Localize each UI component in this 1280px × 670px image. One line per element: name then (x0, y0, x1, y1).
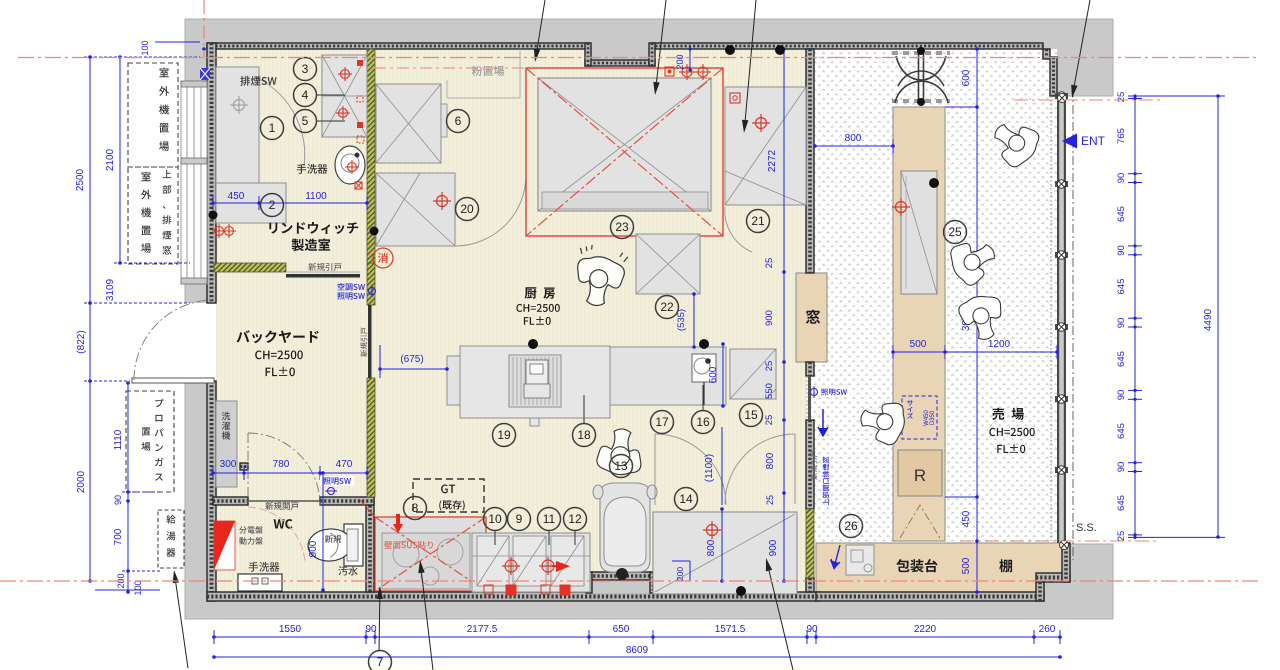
svg-text:2100: 2100 (105, 148, 116, 171)
svg-text:25: 25 (764, 258, 775, 269)
svg-text:14: 14 (679, 492, 693, 506)
svg-text:25: 25 (948, 225, 962, 239)
svg-text:12: 12 (568, 512, 582, 526)
svg-text:20: 20 (460, 202, 474, 216)
svg-text:900: 900 (308, 540, 319, 557)
svg-text:2177.5: 2177.5 (467, 624, 498, 635)
svg-text:765: 765 (1116, 128, 1127, 144)
svg-text:450: 450 (228, 191, 245, 202)
svg-text:1200: 1200 (988, 339, 1011, 350)
svg-text:645: 645 (1116, 423, 1127, 439)
svg-text:1100: 1100 (305, 191, 327, 202)
svg-text:26: 26 (844, 519, 858, 533)
svg-text:8609: 8609 (626, 645, 649, 656)
svg-text:2500: 2500 (75, 168, 86, 191)
svg-text:S.S.: S.S. (1076, 522, 1097, 534)
svg-text:5: 5 (302, 114, 309, 128)
svg-text:90: 90 (806, 624, 818, 635)
svg-text:90: 90 (1116, 318, 1127, 329)
svg-text:450: 450 (961, 510, 972, 527)
svg-text:9: 9 (516, 512, 523, 526)
svg-text:25: 25 (1116, 92, 1127, 103)
svg-text:25: 25 (764, 361, 775, 372)
svg-text:ENT: ENT (1081, 134, 1106, 148)
svg-text:23: 23 (615, 220, 629, 234)
svg-text:(822): (822) (76, 330, 87, 353)
svg-text:15: 15 (744, 408, 758, 422)
svg-text:17: 17 (655, 415, 669, 429)
svg-text:21: 21 (751, 214, 765, 228)
svg-text:3: 3 (302, 62, 309, 76)
svg-text:470: 470 (336, 459, 353, 470)
svg-text:200: 200 (675, 567, 685, 581)
svg-text:7: 7 (377, 655, 384, 669)
svg-text:600: 600 (961, 69, 972, 86)
svg-text:900: 900 (768, 539, 779, 556)
svg-text:19: 19 (497, 428, 511, 442)
svg-text:600: 600 (708, 366, 719, 383)
svg-text:780: 780 (273, 459, 290, 470)
svg-text:90: 90 (1116, 245, 1127, 256)
svg-text:18: 18 (577, 428, 591, 442)
svg-text:90: 90 (365, 624, 377, 635)
svg-text:645: 645 (1116, 495, 1127, 511)
svg-text:22: 22 (660, 300, 674, 314)
svg-text:6: 6 (455, 114, 462, 128)
svg-text:1110: 1110 (113, 429, 124, 450)
svg-text:2220: 2220 (914, 624, 937, 635)
svg-text:700: 700 (113, 528, 124, 545)
svg-text:1571.5: 1571.5 (715, 624, 746, 635)
svg-text:R: R (914, 466, 926, 485)
svg-text:645: 645 (1116, 279, 1127, 295)
svg-text:260: 260 (1039, 624, 1056, 635)
svg-text:8: 8 (412, 501, 419, 515)
svg-text:4: 4 (302, 88, 309, 102)
svg-text:500: 500 (910, 339, 927, 350)
svg-text:25: 25 (1116, 531, 1127, 542)
svg-text:11: 11 (543, 512, 556, 526)
svg-text:550: 550 (764, 383, 775, 399)
svg-text:D350: D350 (930, 410, 936, 425)
svg-text:1550: 1550 (279, 624, 302, 635)
svg-text:(1100): (1100) (704, 454, 715, 482)
svg-text:10: 10 (488, 512, 502, 526)
svg-text:90: 90 (113, 495, 123, 505)
svg-text:645: 645 (1116, 351, 1127, 367)
svg-text:2000: 2000 (76, 470, 87, 493)
svg-text:500: 500 (961, 557, 972, 574)
svg-text:13: 13 (614, 459, 628, 473)
svg-text:2272: 2272 (767, 149, 778, 172)
svg-text:100: 100 (140, 40, 150, 55)
svg-text:90: 90 (1116, 390, 1127, 401)
svg-text:900: 900 (764, 310, 775, 326)
svg-text:2: 2 (269, 198, 276, 212)
svg-text:4490: 4490 (1203, 308, 1214, 331)
svg-text:90: 90 (1116, 173, 1127, 184)
svg-text:(675): (675) (400, 354, 423, 365)
svg-text:800: 800 (765, 452, 776, 469)
svg-text:3109: 3109 (105, 278, 116, 301)
svg-text:1: 1 (269, 121, 276, 135)
svg-text:90: 90 (1116, 462, 1127, 473)
svg-text:25: 25 (764, 415, 775, 426)
svg-text:650: 650 (613, 624, 630, 635)
svg-text:25: 25 (765, 495, 775, 505)
svg-text:16: 16 (696, 415, 710, 429)
svg-text:800: 800 (706, 539, 717, 556)
svg-text:200: 200 (675, 54, 685, 69)
svg-text:100: 100 (133, 580, 143, 595)
svg-text:800: 800 (845, 133, 862, 144)
svg-text:300: 300 (220, 459, 237, 470)
svg-text:645: 645 (1116, 206, 1127, 222)
